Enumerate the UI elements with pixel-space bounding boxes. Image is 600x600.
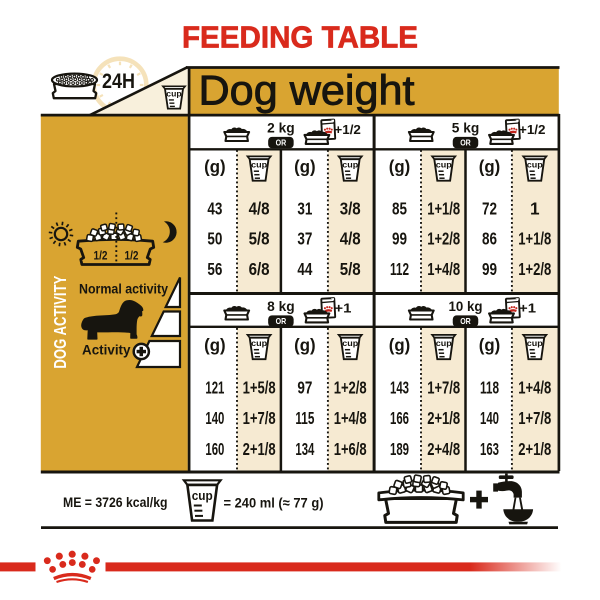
svg-text:cup: cup — [166, 90, 181, 99]
svg-text:86: 86 — [482, 229, 497, 249]
svg-text:5/8: 5/8 — [249, 229, 270, 249]
svg-text:44: 44 — [297, 259, 312, 279]
svg-text:121: 121 — [205, 377, 224, 397]
svg-text:OR: OR — [276, 138, 287, 148]
svg-text:OR: OR — [276, 316, 287, 326]
svg-text:140: 140 — [205, 408, 224, 428]
svg-text:(g): (g) — [204, 335, 226, 355]
svg-text:1/2: 1/2 — [94, 251, 108, 263]
svg-text:1+1/8: 1+1/8 — [427, 198, 460, 218]
svg-text:112: 112 — [390, 259, 409, 279]
svg-text:(g): (g) — [479, 335, 501, 355]
svg-text:6/8: 6/8 — [249, 259, 270, 279]
svg-text:5/8: 5/8 — [340, 259, 361, 279]
svg-text:Activity: Activity — [82, 343, 131, 358]
svg-text:cup: cup — [342, 160, 358, 170]
svg-text:97: 97 — [297, 377, 312, 397]
svg-text:2+4/8: 2+4/8 — [427, 439, 460, 459]
svg-text:(g): (g) — [204, 156, 226, 176]
svg-text:ME = 3726 kcal/kg: ME = 3726 kcal/kg — [63, 495, 168, 511]
svg-text:1+7/8: 1+7/8 — [427, 377, 460, 397]
svg-text:4/8: 4/8 — [340, 229, 361, 249]
svg-text:cup: cup — [192, 489, 213, 503]
svg-text:2+1/8: 2+1/8 — [518, 439, 551, 459]
svg-text:163: 163 — [480, 439, 499, 459]
svg-text:189: 189 — [390, 439, 409, 459]
svg-text:(g): (g) — [389, 156, 411, 176]
svg-text:1+4/8: 1+4/8 — [427, 259, 460, 279]
svg-text:(g): (g) — [294, 156, 316, 176]
svg-text:(g): (g) — [389, 335, 411, 355]
svg-text:143: 143 — [390, 377, 409, 397]
svg-text:= 240 ml (≈ 77 g): = 240 ml (≈ 77 g) — [224, 496, 324, 512]
svg-text:+1: +1 — [334, 300, 351, 315]
svg-text:31: 31 — [297, 198, 312, 218]
svg-text:5 kg: 5 kg — [452, 120, 480, 135]
svg-text:FEEDING TABLE: FEEDING TABLE — [182, 20, 418, 55]
svg-text:1+4/8: 1+4/8 — [334, 408, 367, 428]
svg-text:99: 99 — [392, 229, 407, 249]
svg-text:166: 166 — [390, 408, 409, 428]
svg-text:+1/2: +1/2 — [334, 122, 361, 137]
svg-text:8 kg: 8 kg — [267, 299, 295, 314]
svg-text:cup: cup — [527, 338, 543, 348]
svg-text:+1/2: +1/2 — [519, 122, 546, 137]
svg-text:1+2/8: 1+2/8 — [334, 377, 367, 397]
svg-text:24H: 24H — [102, 70, 135, 93]
svg-text:50: 50 — [207, 229, 222, 249]
svg-text:99: 99 — [482, 259, 497, 279]
svg-text:1+2/8: 1+2/8 — [518, 259, 551, 279]
svg-text:43: 43 — [207, 198, 222, 218]
svg-text:OR: OR — [460, 138, 471, 148]
svg-text:OR: OR — [460, 316, 471, 326]
svg-text:1: 1 — [530, 198, 540, 218]
svg-text:1/2: 1/2 — [125, 251, 139, 263]
svg-text:85: 85 — [392, 198, 407, 218]
svg-text:cup: cup — [527, 160, 543, 170]
svg-text:cup: cup — [436, 338, 452, 348]
svg-text:1+5/8: 1+5/8 — [243, 377, 276, 397]
svg-text:140: 140 — [480, 408, 499, 428]
svg-text:cup: cup — [342, 338, 358, 348]
svg-text:160: 160 — [205, 439, 224, 459]
svg-text:1+6/8: 1+6/8 — [334, 439, 367, 459]
svg-text:1+4/8: 1+4/8 — [518, 377, 551, 397]
svg-text:(g): (g) — [294, 335, 316, 355]
svg-text:1+7/8: 1+7/8 — [243, 408, 276, 428]
svg-text:3/8: 3/8 — [340, 198, 361, 218]
svg-text:cup: cup — [251, 338, 267, 348]
svg-text:1+1/8: 1+1/8 — [518, 229, 551, 249]
svg-text:115: 115 — [295, 408, 314, 428]
svg-text:1+7/8: 1+7/8 — [518, 408, 551, 428]
svg-text:(g): (g) — [479, 156, 501, 176]
svg-text:2+1/8: 2+1/8 — [243, 439, 276, 459]
svg-text:cup: cup — [251, 160, 267, 170]
svg-text:4/8: 4/8 — [249, 198, 270, 218]
svg-text:134: 134 — [295, 439, 314, 459]
svg-text:10 kg: 10 kg — [449, 299, 483, 314]
svg-text:37: 37 — [297, 229, 312, 249]
svg-text:Dog weight: Dog weight — [199, 67, 415, 114]
svg-text:DOG ACTIVITY: DOG ACTIVITY — [50, 275, 70, 368]
svg-text:Normal activity: Normal activity — [79, 282, 168, 297]
svg-text:118: 118 — [480, 377, 499, 397]
svg-text:2+1/8: 2+1/8 — [427, 408, 460, 428]
svg-text:72: 72 — [482, 198, 497, 218]
svg-text:+1: +1 — [519, 300, 536, 315]
svg-text:56: 56 — [207, 259, 222, 279]
svg-text:2 kg: 2 kg — [267, 120, 295, 135]
svg-text:1+2/8: 1+2/8 — [427, 229, 460, 249]
svg-text:cup: cup — [436, 160, 452, 170]
